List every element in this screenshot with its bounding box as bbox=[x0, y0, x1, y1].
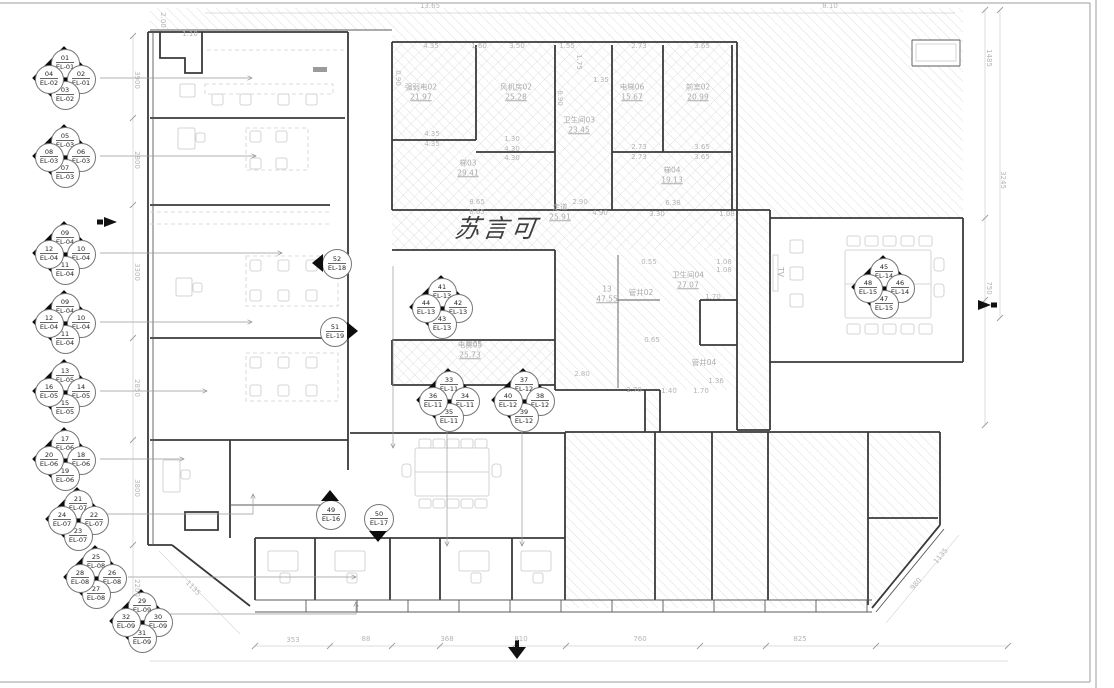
marker-number: 50 bbox=[375, 511, 383, 518]
quadrant-number: 40 bbox=[504, 393, 512, 400]
marker-quadrant: 32EL-09 bbox=[112, 608, 141, 637]
marker-quadrant: 08EL-03 bbox=[35, 143, 64, 172]
dimension-label: 2.90 bbox=[572, 198, 588, 206]
dimension-label: 980 bbox=[909, 576, 924, 591]
marker-quadrant: 12EL-04 bbox=[35, 240, 64, 269]
marker-label: EL-16 bbox=[322, 514, 340, 522]
quadrant-label: EL-13 bbox=[417, 307, 435, 315]
elevation-marker-EL-06: 17EL-0618EL-0619EL-0620EL-06 bbox=[30, 425, 98, 493]
dimension-label: 3245 bbox=[999, 171, 1007, 189]
marker-circle: 51EL-19 bbox=[320, 317, 350, 347]
marker-quadrant: 40EL-12 bbox=[494, 387, 523, 416]
room-name: 走道 bbox=[549, 202, 570, 212]
quadrant-number: 14 bbox=[77, 384, 85, 391]
quadrant-label: EL-05 bbox=[56, 407, 74, 415]
dimension-label: 760 bbox=[633, 635, 646, 643]
marker-circle: 52EL-18 bbox=[322, 249, 352, 279]
dimension-label: 4.30 bbox=[504, 154, 520, 162]
room-name: 管井02 bbox=[629, 288, 654, 298]
room-name: 风机房02 bbox=[500, 82, 532, 92]
marker-number: 52 bbox=[333, 256, 341, 263]
quadrant-number: 16 bbox=[45, 384, 53, 391]
quadrant-label: EL-12 bbox=[499, 400, 517, 408]
elevation-marker-EL-05: 13EL-0514EL-0515EL-0516EL-05 bbox=[30, 357, 98, 425]
dimension-label: 1.70 bbox=[705, 293, 721, 301]
elevation-marker-EL-16: 49EL-16 bbox=[316, 500, 344, 528]
dimension-label: 1485 bbox=[985, 49, 993, 67]
quadrant-number: 33 bbox=[445, 377, 453, 384]
dimension-label: 750 bbox=[985, 281, 993, 294]
elevation-marker-EL-18: 52EL-18 bbox=[322, 249, 350, 277]
dimension-label: 2200 bbox=[133, 579, 141, 597]
dimension-label: 3.65 bbox=[694, 42, 710, 50]
room-name: 电梯06 bbox=[620, 82, 645, 92]
room-label: 梯0419.13 bbox=[661, 165, 682, 185]
dimension-label: 6.38 bbox=[665, 199, 681, 207]
dimension-label: 3900 bbox=[133, 71, 141, 89]
elevation-marker-EL-17: 50EL-17 bbox=[364, 504, 392, 532]
dimension-label: 2.70 bbox=[626, 386, 642, 394]
room-name: 梯03 bbox=[457, 158, 478, 168]
room-area-value: 27.07 bbox=[672, 280, 704, 290]
quadrant-number: 07 bbox=[61, 165, 69, 172]
room-area-value: 25.91 bbox=[549, 212, 570, 222]
quadrant-number: 09 bbox=[61, 299, 69, 306]
quadrant-number: 25 bbox=[92, 554, 100, 561]
room-label: 管井02 bbox=[629, 288, 654, 298]
elevation-marker-EL-19: 51EL-19 bbox=[320, 317, 348, 345]
quadrant-label: EL-04 bbox=[56, 338, 74, 346]
marker-quadrant: 16EL-05 bbox=[35, 378, 64, 407]
dimension-label: 2.73 bbox=[631, 143, 647, 151]
room-label: 1347.55 bbox=[596, 284, 617, 304]
dimension-label: 1135 bbox=[932, 547, 950, 566]
marker-number: 51 bbox=[331, 324, 339, 331]
watermark-text: 苏言可 bbox=[452, 209, 541, 245]
quadrant-label: EL-12 bbox=[515, 416, 533, 424]
marker-quadrant: 20EL-06 bbox=[35, 446, 64, 475]
dimension-label: 8.65 bbox=[469, 198, 485, 206]
room-name: 13 bbox=[596, 284, 617, 294]
dimension-label: 2.80 bbox=[574, 370, 590, 378]
dimension-label: 2.73 bbox=[631, 42, 647, 50]
dimension-label: 1.40 bbox=[661, 387, 677, 395]
quadrant-number: 46 bbox=[896, 280, 904, 287]
quadrant-number: 47 bbox=[880, 296, 888, 303]
quadrant-number: 11 bbox=[61, 331, 69, 338]
quadrant-label: EL-15 bbox=[859, 287, 877, 295]
quadrant-number: 13 bbox=[61, 368, 69, 375]
floor-plan-sheet: 苏言可 01EL-0102EL-0103EL-0204EL-0205EL-030… bbox=[0, 0, 1114, 688]
dimension-label: 2.73 bbox=[631, 153, 647, 161]
quadrant-label: EL-11 bbox=[440, 416, 458, 424]
quadrant-label: EL-04 bbox=[40, 253, 58, 261]
quadrant-number: 20 bbox=[45, 452, 53, 459]
quadrant-label: EL-03 bbox=[56, 172, 74, 180]
elevation-marker-EL-13: 41EL-1342EL-1343EL-1344EL-13 bbox=[407, 273, 475, 341]
dimension-label: 4.30 bbox=[504, 145, 520, 153]
quadrant-label: EL-13 bbox=[433, 323, 451, 331]
room-label: 卫生间0427.07 bbox=[672, 270, 704, 290]
quadrant-label: EL-02 bbox=[56, 94, 74, 102]
quadrant-number: 39 bbox=[520, 409, 528, 416]
dimension-label: 1.10 bbox=[182, 30, 198, 38]
room-area-value: 25.73 bbox=[458, 350, 483, 360]
dimension-label: 1.08 bbox=[716, 258, 732, 266]
quadrant-number: 30 bbox=[154, 614, 162, 621]
quadrant-label: EL-06 bbox=[56, 475, 74, 483]
quadrant-number: 35 bbox=[445, 409, 453, 416]
room-label: 走道25.91 bbox=[549, 202, 570, 222]
dimension-label: 353 bbox=[286, 636, 299, 644]
marker-quadrant: 48EL-15 bbox=[854, 274, 883, 303]
quadrant-label: EL-08 bbox=[71, 577, 89, 585]
room-area-value: 25.28 bbox=[500, 92, 532, 102]
quadrant-number: 01 bbox=[61, 55, 69, 62]
quadrant-number: 04 bbox=[45, 71, 53, 78]
quadrant-number: 12 bbox=[45, 246, 53, 253]
room-label: 风机房0225.28 bbox=[500, 82, 532, 102]
marker-triangle-left-icon bbox=[312, 254, 323, 272]
marker-quadrant: 44EL-13 bbox=[412, 294, 441, 323]
quadrant-number: 37 bbox=[520, 377, 528, 384]
dimension-label: 3800 bbox=[133, 479, 141, 497]
elevation-marker-EL-01-02: 01EL-0102EL-0103EL-0204EL-02 bbox=[30, 44, 98, 112]
dimension-label: 1.70 bbox=[693, 387, 709, 395]
dimension-label: 1.55 bbox=[559, 42, 575, 50]
quadrant-label: EL-09 bbox=[133, 637, 151, 645]
room-area-value: 19.13 bbox=[661, 175, 682, 185]
marker-label: EL-18 bbox=[328, 263, 346, 271]
quadrant-number: 43 bbox=[438, 316, 446, 323]
quadrant-number: 27 bbox=[92, 586, 100, 593]
quadrant-number: 44 bbox=[422, 300, 430, 307]
marker-quadrant: 04EL-02 bbox=[35, 65, 64, 94]
quadrant-number: 22 bbox=[90, 512, 98, 519]
quadrant-number: 05 bbox=[61, 133, 69, 140]
quadrant-number: 18 bbox=[77, 452, 85, 459]
dimension-label: 2850 bbox=[133, 379, 141, 397]
dimension-label: 3300 bbox=[133, 263, 141, 281]
dimension-label: 368 bbox=[440, 635, 453, 643]
room-area-value: 47.55 bbox=[596, 294, 617, 304]
dimension-label: 0.65 bbox=[644, 336, 660, 344]
elevation-marker-EL-03: 05EL-0306EL-0307EL-0308EL-03 bbox=[30, 122, 98, 190]
elevation-marker-EL-04-a: 09EL-0410EL-0411EL-0412EL-04 bbox=[30, 219, 98, 287]
marker-circle: 49EL-16 bbox=[316, 500, 346, 530]
dimension-label: 1.35 bbox=[593, 76, 609, 84]
dimension-label: 4.35 bbox=[424, 140, 440, 148]
room-area-value: 20.99 bbox=[686, 92, 711, 102]
room-area-value: 21.97 bbox=[405, 92, 437, 102]
elevation-marker-EL-11: 33EL-1134EL-1135EL-1136EL-11 bbox=[414, 366, 482, 434]
room-label: 管井04 bbox=[692, 358, 717, 368]
annotation-overlay: 苏言可 01EL-0102EL-0103EL-0204EL-0205EL-030… bbox=[0, 0, 1114, 688]
quadrant-number: 31 bbox=[138, 630, 146, 637]
dimension-label: 88 bbox=[362, 635, 371, 643]
dimension-label: 3.65 bbox=[694, 143, 710, 151]
dimension-label: 0.55 bbox=[641, 258, 657, 266]
quadrant-number: 45 bbox=[880, 264, 888, 271]
quadrant-number: 02 bbox=[77, 71, 85, 78]
quadrant-label: EL-07 bbox=[53, 519, 71, 527]
room-name: 强弱电02 bbox=[405, 82, 437, 92]
marker-triangle-down-icon bbox=[369, 531, 387, 542]
quadrant-number: 10 bbox=[77, 315, 85, 322]
room-label: TV bbox=[775, 267, 785, 277]
dimension-label: 0.90 bbox=[394, 70, 402, 86]
room-name: 卫生间04 bbox=[672, 270, 704, 280]
dimension-label: 4.35 bbox=[423, 42, 439, 50]
quadrant-number: 28 bbox=[76, 570, 84, 577]
quadrant-label: EL-04 bbox=[40, 322, 58, 330]
room-label: 梯0329.41 bbox=[457, 158, 478, 178]
room-area-value: 23.45 bbox=[563, 125, 595, 135]
quadrant-number: 09 bbox=[61, 230, 69, 237]
marker-number: 49 bbox=[327, 507, 335, 514]
quadrant-label: EL-11 bbox=[424, 400, 442, 408]
dimension-label: 4.90 bbox=[592, 209, 608, 217]
quadrant-number: 48 bbox=[864, 280, 872, 287]
room-label: 电梯0615.67 bbox=[620, 82, 645, 102]
quadrant-number: 08 bbox=[45, 149, 53, 156]
marker-label: EL-19 bbox=[326, 331, 344, 339]
dimension-label: 2.00 bbox=[159, 12, 167, 28]
dimension-label: 8.10 bbox=[822, 2, 838, 10]
quadrant-label: EL-06 bbox=[40, 459, 58, 467]
room-label: 卫生间0323.45 bbox=[563, 115, 595, 135]
marker-label: EL-17 bbox=[370, 518, 388, 526]
room-label: 前室0220.99 bbox=[686, 82, 711, 102]
room-name: TV bbox=[775, 267, 785, 277]
dimension-label: 1.08 bbox=[719, 210, 735, 218]
quadrant-number: 15 bbox=[61, 400, 69, 407]
dimension-label: 8.65 bbox=[466, 340, 482, 348]
quadrant-number: 21 bbox=[74, 496, 82, 503]
quadrant-label: EL-08 bbox=[87, 593, 105, 601]
quadrant-number: 12 bbox=[45, 315, 53, 322]
quadrant-number: 03 bbox=[61, 87, 69, 94]
quadrant-number: 23 bbox=[74, 528, 82, 535]
marker-circle: 50EL-17 bbox=[364, 504, 394, 534]
room-name: 梯04 bbox=[661, 165, 682, 175]
quadrant-label: EL-02 bbox=[40, 78, 58, 86]
room-area-value: 29.41 bbox=[457, 168, 478, 178]
quadrant-number: 19 bbox=[61, 468, 69, 475]
room-label: 强弱电0221.97 bbox=[405, 82, 437, 102]
dimension-label: 1135 bbox=[184, 579, 202, 597]
dimension-label: 13.65 bbox=[420, 2, 440, 10]
elevation-marker-EL-12: 37EL-1238EL-1239EL-1240EL-12 bbox=[489, 366, 557, 434]
marker-quadrant: 12EL-04 bbox=[35, 309, 64, 338]
dimension-label: 3.65 bbox=[694, 153, 710, 161]
quadrant-number: 36 bbox=[429, 393, 437, 400]
room-name: 管井04 bbox=[692, 358, 717, 368]
quadrant-label: EL-04 bbox=[56, 269, 74, 277]
dimension-label: 8.65 bbox=[469, 208, 485, 216]
quadrant-label: EL-15 bbox=[875, 303, 893, 311]
quadrant-number: 24 bbox=[58, 512, 66, 519]
dimension-label: 3.30 bbox=[649, 210, 665, 218]
quadrant-number: 17 bbox=[61, 436, 69, 443]
quadrant-number: 06 bbox=[77, 149, 85, 156]
quadrant-label: EL-09 bbox=[117, 621, 135, 629]
quadrant-number: 10 bbox=[77, 246, 85, 253]
quadrant-number: 42 bbox=[454, 300, 462, 307]
room-name: 前室02 bbox=[686, 82, 711, 92]
quadrant-label: EL-05 bbox=[40, 391, 58, 399]
dimension-label: 1.75 bbox=[575, 54, 583, 70]
quadrant-number: 38 bbox=[536, 393, 544, 400]
quadrant-number: 41 bbox=[438, 284, 446, 291]
dimension-label: 6.90 bbox=[556, 90, 564, 106]
quadrant-number: 34 bbox=[461, 393, 469, 400]
dimension-label: 4.35 bbox=[424, 130, 440, 138]
dimension-label: 1.08 bbox=[716, 266, 732, 274]
marker-quadrant: 28EL-08 bbox=[66, 564, 95, 593]
dimension-label: 825 bbox=[793, 635, 806, 643]
elevation-marker-EL-14-15: 45EL-1446EL-1447EL-1548EL-15 bbox=[849, 253, 917, 321]
marker-triangle-right-icon bbox=[347, 322, 358, 340]
room-name: 卫生间03 bbox=[563, 115, 595, 125]
dimension-label: 3.50 bbox=[509, 42, 525, 50]
elevation-marker-EL-04-b: 09EL-0410EL-0411EL-0412EL-04 bbox=[30, 288, 98, 356]
dimension-label: 810 bbox=[514, 635, 527, 643]
elevation-marker-EL-09: 29EL-0930EL-0931EL-0932EL-09 bbox=[107, 587, 175, 655]
dimension-label: 1.60 bbox=[471, 42, 487, 50]
quadrant-number: 11 bbox=[61, 262, 69, 269]
dimension-label: 1.30 bbox=[504, 135, 520, 143]
quadrant-number: 32 bbox=[122, 614, 130, 621]
quadrant-label: EL-03 bbox=[40, 156, 58, 164]
quadrant-number: 26 bbox=[108, 570, 116, 577]
marker-quadrant: 36EL-11 bbox=[419, 387, 448, 416]
quadrant-number: 29 bbox=[138, 598, 146, 605]
room-area-value: 15.67 bbox=[620, 92, 645, 102]
marker-triangle-up-icon bbox=[321, 490, 339, 501]
marker-quadrant: 24EL-07 bbox=[48, 506, 77, 535]
dimension-label: 2800 bbox=[133, 151, 141, 169]
dimension-label: 1.36 bbox=[708, 377, 724, 385]
